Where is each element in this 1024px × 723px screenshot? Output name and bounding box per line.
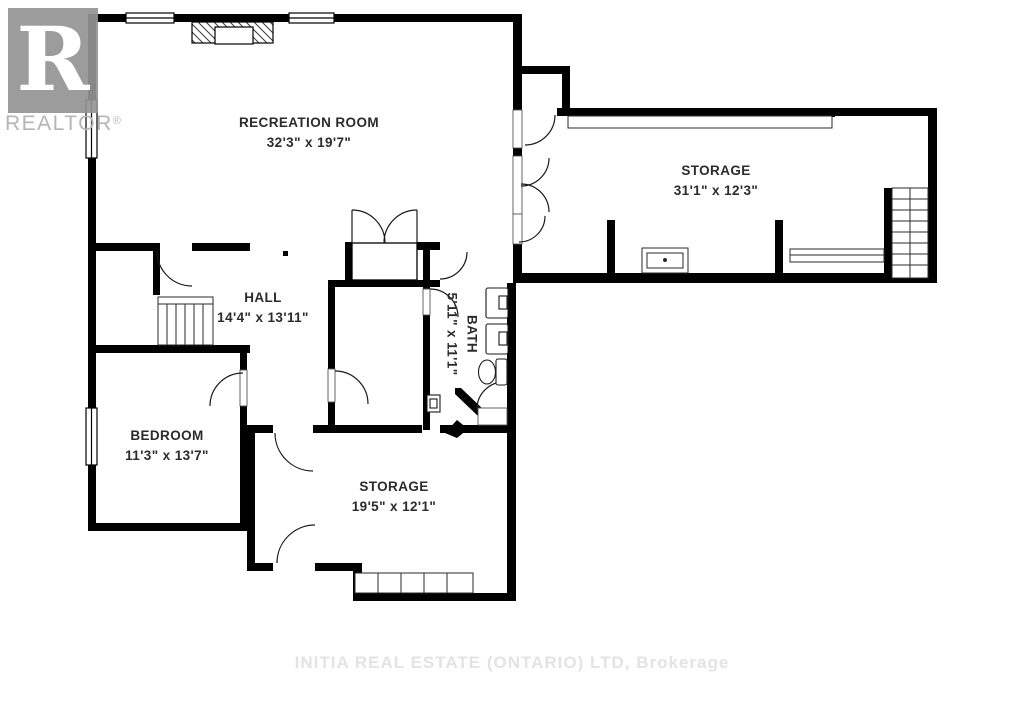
room-label-hall: HALL 14'4" x 13'11" [217, 288, 309, 329]
room-label-bedroom: BEDROOM 11'3" x 13'7" [125, 426, 209, 467]
storage-furnishings [355, 116, 884, 593]
room-label-recreation-room: RECREATION ROOM 32'3" x 19'7" [239, 113, 379, 154]
walls [88, 14, 937, 601]
registered-symbol: ® [113, 115, 123, 127]
room-dims: 14'4" x 13'11" [217, 308, 309, 328]
storage-stairs [892, 188, 928, 278]
room-label-storage-upper: STORAGE 31'1" x 12'3" [674, 161, 758, 202]
realtor-logo-icon: R [8, 8, 98, 113]
room-dims: 32'3" x 19'7" [239, 133, 379, 153]
room-dims: 5'11" x 11'1" [441, 293, 461, 376]
room-dims: 31'1" x 12'3" [674, 181, 758, 201]
room-name: STORAGE [359, 479, 428, 494]
room-dims: 11'3" x 13'7" [125, 446, 209, 466]
hall-stairs [158, 297, 213, 345]
shelf [568, 116, 832, 128]
fireplace [192, 22, 273, 44]
room-label-storage-lower: STORAGE 19'5" x 12'1" [352, 477, 436, 518]
brokerage-watermark: INITIA REAL ESTATE (ONTARIO) LTD, Broker… [295, 653, 730, 673]
realtor-logo-letter: R [16, 15, 89, 103]
closet-box [352, 243, 417, 280]
room-name: BEDROOM [130, 428, 203, 443]
room-name: HALL [244, 290, 282, 305]
room-dims: 19'5" x 12'1" [352, 497, 436, 517]
room-name: RECREATION ROOM [239, 115, 379, 130]
windows [86, 13, 334, 465]
toilet-icon [496, 359, 507, 385]
floorplan-drawing [0, 0, 1024, 723]
room-label-bath: BATH 5'11" x 11'1" [441, 293, 482, 376]
floorplan-page: RECREATION ROOM 32'3" x 19'7" STORAGE 31… [0, 0, 1024, 723]
room-name: STORAGE [681, 163, 750, 178]
window-well [355, 573, 473, 593]
realtor-logo-wordmark: REALTOR® [5, 112, 135, 136]
room-name: BATH [464, 315, 479, 353]
